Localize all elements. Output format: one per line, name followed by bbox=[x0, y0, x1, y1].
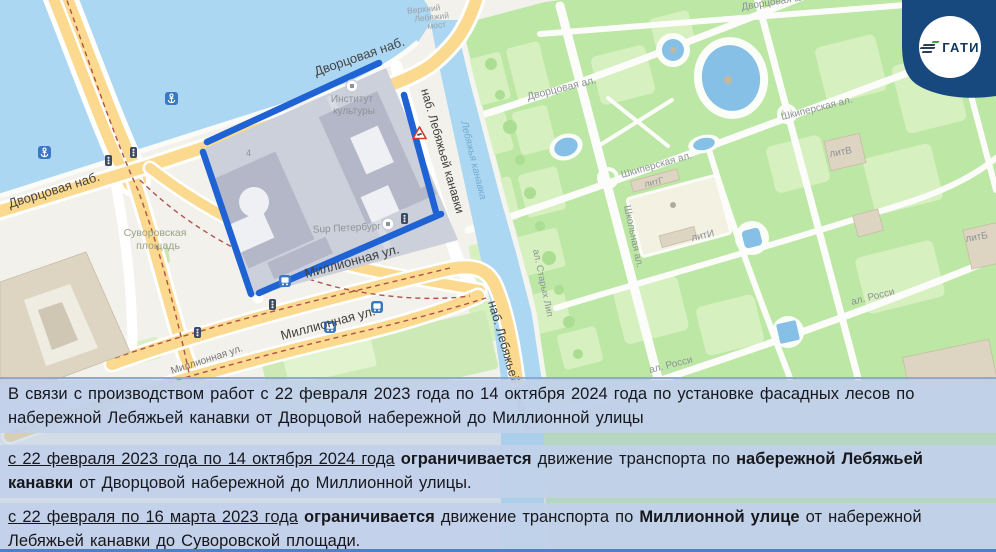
notice-text-segment: от Дворцовой набережной до Миллионной ул… bbox=[73, 474, 472, 492]
traffic-light-icon bbox=[269, 299, 276, 310]
notice-panel: В связи с производством работ с 22 февра… bbox=[0, 377, 996, 552]
poi-circle-icon bbox=[346, 80, 358, 92]
traffic-light-icon bbox=[401, 213, 408, 224]
gati-logo-stripes-icon bbox=[920, 41, 939, 54]
traffic-light-icon bbox=[194, 327, 201, 338]
notice-paragraph: с 22 февраля по 16 марта 2023 года огран… bbox=[0, 503, 996, 552]
anchor-icon bbox=[165, 92, 178, 105]
notice-text-segment: В связи с производством работ с 22 февра… bbox=[8, 385, 914, 427]
traffic-light-icon bbox=[130, 147, 137, 158]
bus-stop-icon bbox=[279, 275, 291, 287]
notice-text-segment: ограничивается bbox=[401, 450, 532, 468]
anchor-icon bbox=[38, 146, 51, 159]
announcement-image: Дворцовая наб.Дворцовая наб.ВерхнийЛебяж… bbox=[0, 0, 996, 552]
notice-text-segment: ограничивается bbox=[304, 508, 435, 526]
notice-text-segment: Миллионной улице bbox=[639, 508, 799, 526]
gati-logo-text: ГАТИ bbox=[942, 40, 979, 55]
map-label: Суворовская bbox=[124, 227, 187, 239]
gati-logo: ГАТИ bbox=[919, 16, 981, 78]
notice-text-segment: с 22 февраля по 16 марта 2023 года bbox=[8, 508, 298, 526]
notice-paragraph: с 22 февраля 2023 года по 14 октября 202… bbox=[0, 445, 996, 498]
map-label: мост bbox=[427, 19, 447, 31]
notice-text-segment: движение транспорта по bbox=[435, 508, 640, 526]
map-label: площадь bbox=[136, 240, 180, 252]
map-label: 4 bbox=[246, 148, 251, 158]
notice-text-segment: движение транспорта по bbox=[532, 450, 737, 468]
map-label: культуры bbox=[333, 106, 375, 117]
poi-circle-icon bbox=[382, 218, 394, 230]
map-label: Институт bbox=[331, 94, 374, 105]
notice-text-segment: с 22 февраля 2023 года по 14 октября 202… bbox=[8, 450, 395, 468]
notice-paragraph: В связи с производством работ с 22 февра… bbox=[0, 380, 996, 433]
traffic-light-icon bbox=[105, 155, 112, 166]
